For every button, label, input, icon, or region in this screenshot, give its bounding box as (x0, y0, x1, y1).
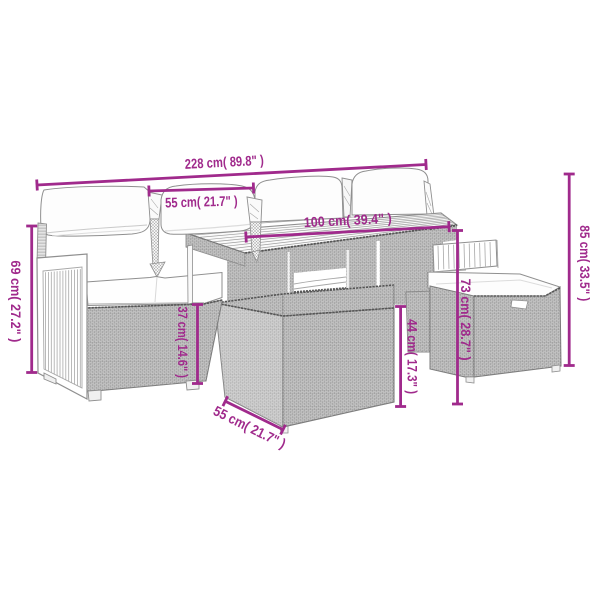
svg-text:85 cm( 33.5" ): 85 cm( 33.5" ) (577, 225, 593, 301)
svg-text:37 cm( 14.6" ): 37 cm( 14.6" ) (175, 306, 191, 378)
svg-text:55 cm( 21.7" ): 55 cm( 21.7" ) (165, 192, 238, 210)
svg-text:69 cm( 27.2" ): 69 cm( 27.2" ) (8, 260, 24, 342)
svg-text:73 cm( 28.7" ): 73 cm( 28.7" ) (458, 279, 474, 361)
svg-text:44 cm( 17.3" ): 44 cm( 17.3" ) (404, 319, 420, 394)
